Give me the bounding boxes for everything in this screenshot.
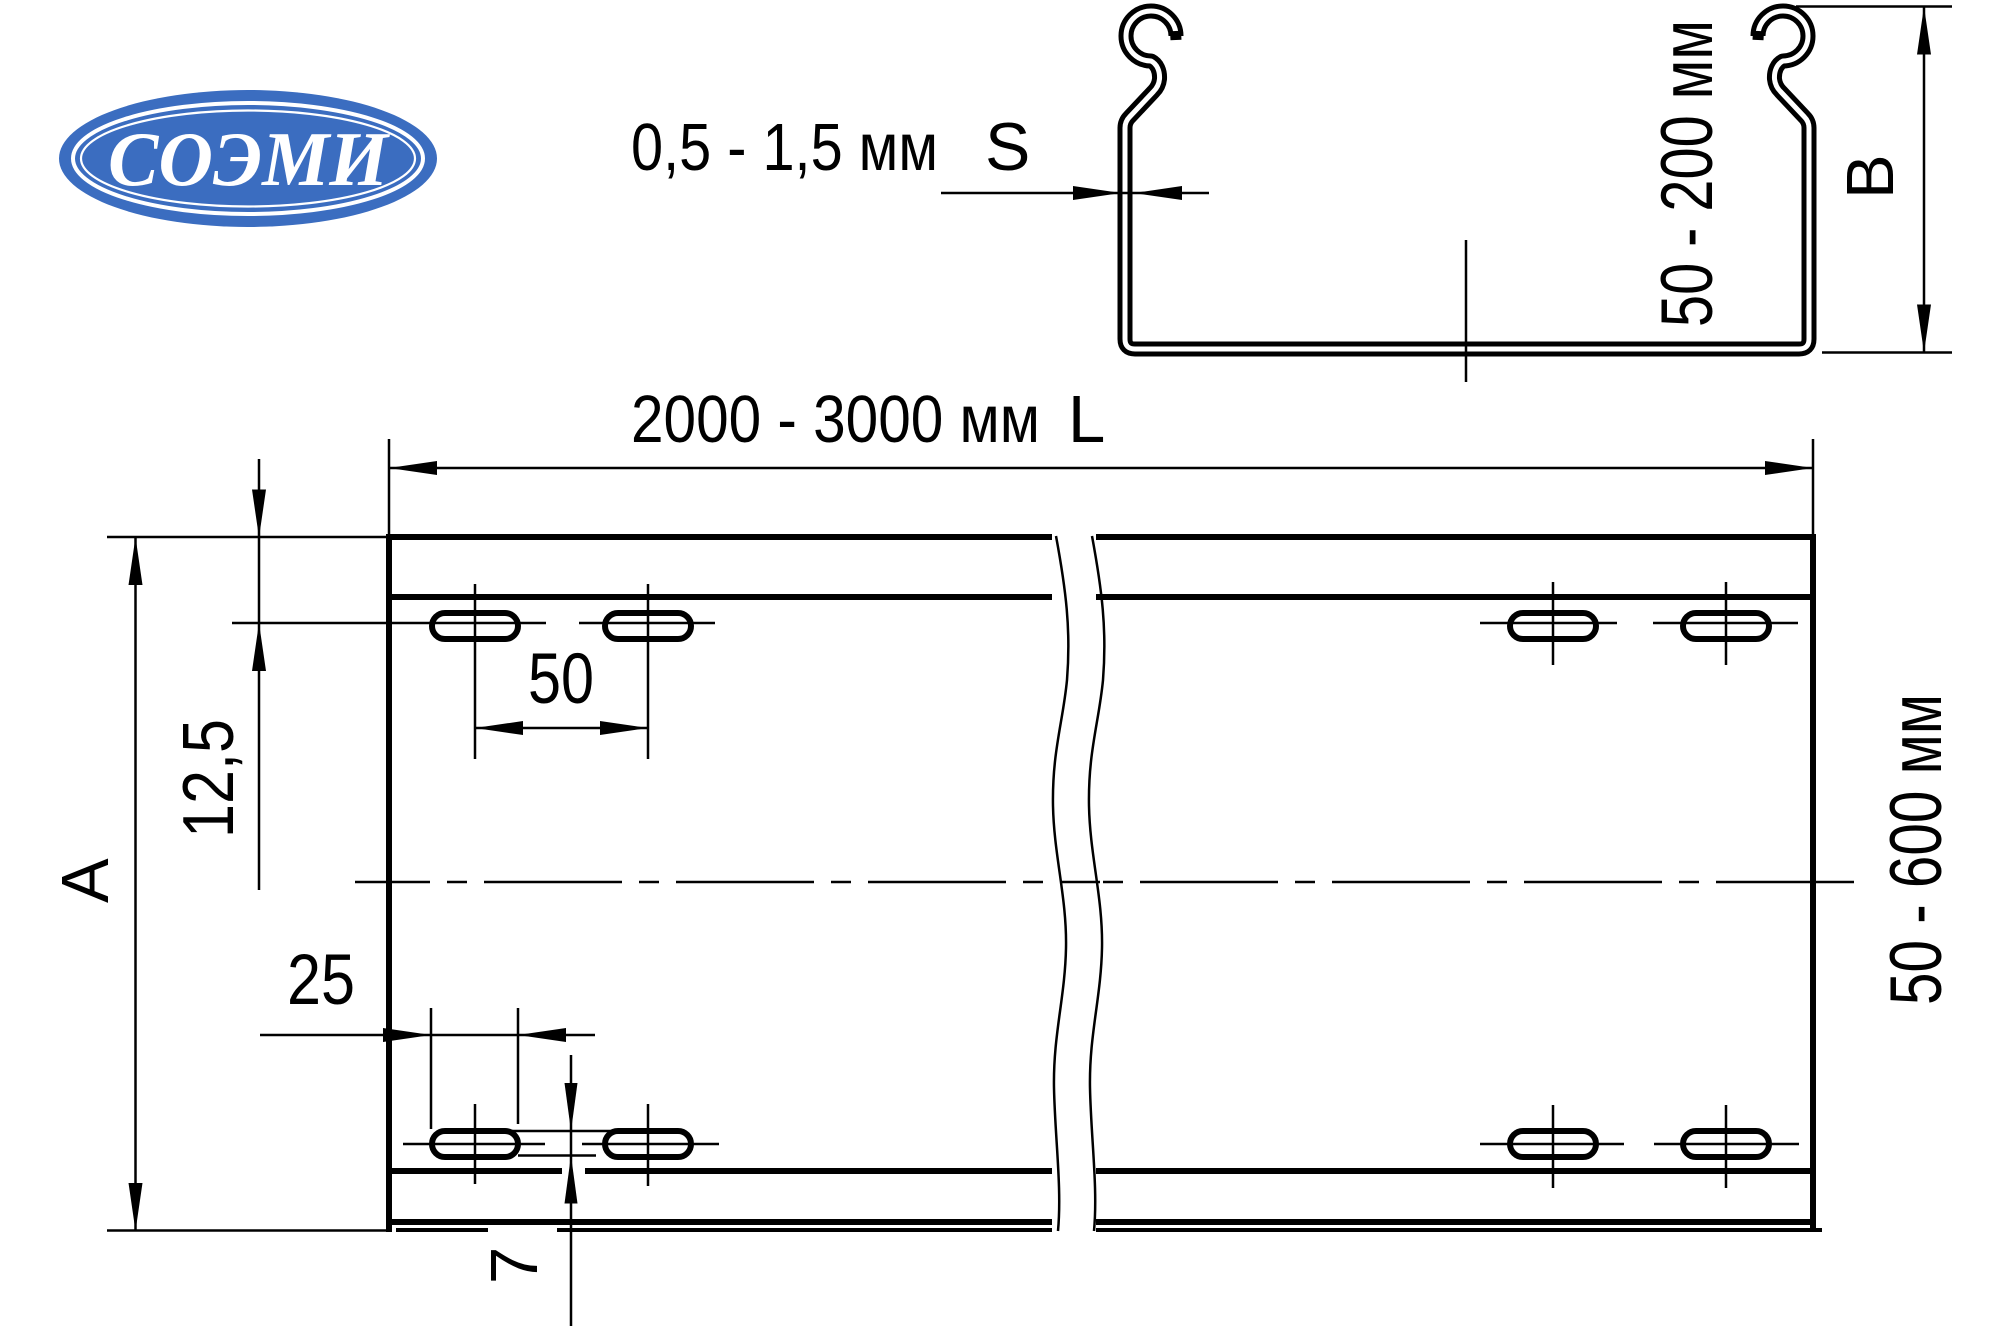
svg-text:7: 7	[477, 1247, 552, 1284]
svg-text:S: S	[985, 109, 1030, 185]
svg-text:50: 50	[528, 640, 594, 719]
svg-text:25: 25	[287, 941, 355, 1020]
svg-text:0,5 - 1,5 мм: 0,5 - 1,5 мм	[631, 110, 938, 185]
svg-text:50 - 200 мм: 50 - 200 мм	[1647, 20, 1728, 327]
svg-text:L: L	[1068, 382, 1105, 457]
svg-text:B: B	[1833, 154, 1908, 199]
svg-text:12,5: 12,5	[169, 719, 249, 838]
svg-text:СОЭМИ: СОЭМИ	[108, 116, 390, 202]
svg-text:A: A	[48, 858, 123, 903]
svg-text:50 - 600 мм: 50 - 600 мм	[1876, 694, 1957, 1005]
svg-text:2000 - 3000 мм: 2000 - 3000 мм	[631, 382, 1040, 457]
